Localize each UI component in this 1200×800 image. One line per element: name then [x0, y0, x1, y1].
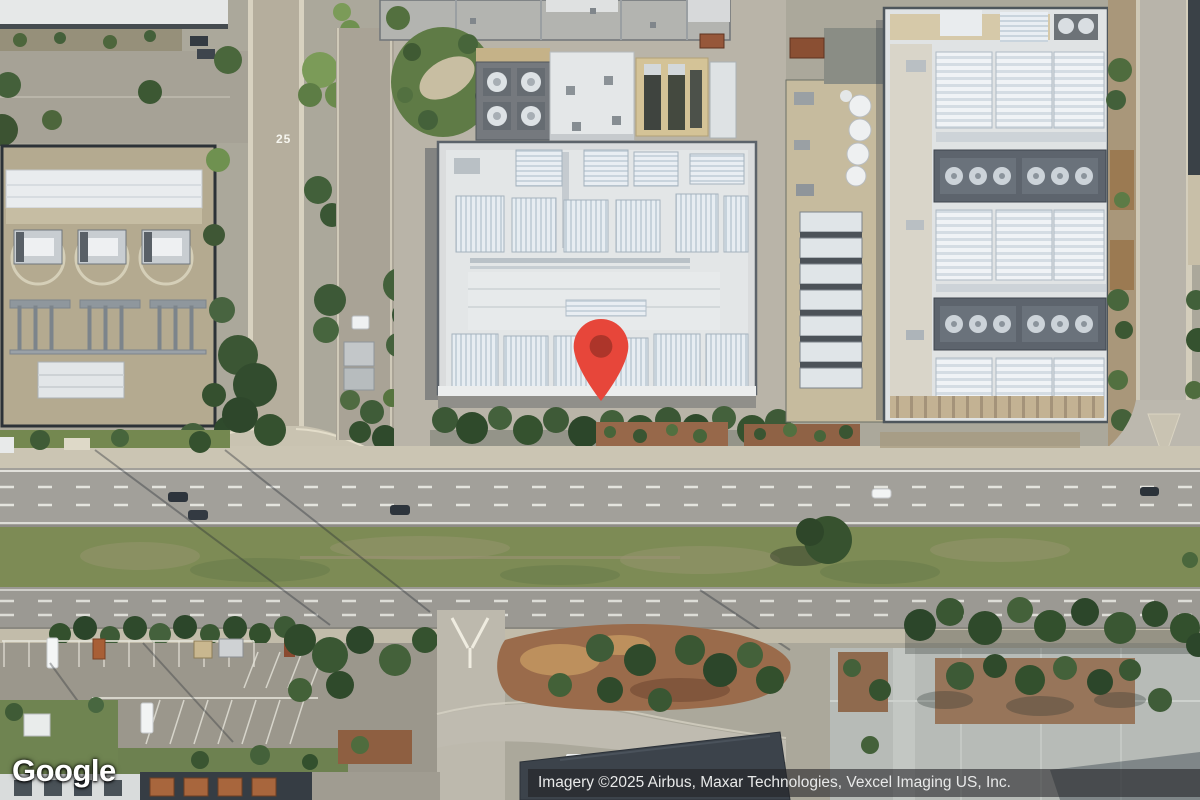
- white-shed: [24, 714, 50, 736]
- car-dark-4: [1140, 487, 1159, 496]
- east-fan-array-1: [934, 150, 1106, 202]
- electrical-substation: [2, 146, 215, 426]
- attribution-text: Imagery ©2025 Airbus, Maxar Technologies…: [538, 774, 1011, 791]
- rooftop-hvac-row-mid: [456, 194, 748, 252]
- car-dark-2: [188, 510, 208, 520]
- substation-shed: [38, 362, 124, 398]
- white-annex-building: [550, 52, 634, 140]
- yard-hvac-column: [800, 212, 862, 388]
- orange-container: [93, 639, 105, 659]
- cooling-fan-unit: [476, 48, 550, 140]
- main-road-eastbound: [0, 468, 1200, 527]
- east-fan-array-2: [934, 298, 1106, 350]
- east-hvac-row-1: [936, 52, 1104, 128]
- car-dark-1: [168, 492, 188, 502]
- imagery-attribution: Imagery ©2025 Airbus, Maxar Technologies…: [528, 769, 1200, 797]
- car-dark-3: [390, 505, 410, 515]
- parked-van: [141, 703, 153, 733]
- car-white: [872, 489, 891, 498]
- map-canvas[interactable]: 25 Google Imagery ©2025 Airbus, Maxar Te…: [0, 0, 1200, 800]
- equipment-yard: [786, 28, 884, 422]
- landscaped-mound: [497, 624, 790, 712]
- google-logo[interactable]: Google: [12, 753, 116, 789]
- pin-body: [574, 319, 629, 401]
- parked-bus: [47, 638, 58, 668]
- location-marker-icon[interactable]: [573, 319, 629, 401]
- pin-hole: [590, 335, 613, 358]
- white-truck: [352, 316, 369, 329]
- road-number-marking: 25: [276, 132, 291, 146]
- east-datacenter-building: [876, 8, 1108, 422]
- northwest-parking: [0, 36, 248, 146]
- east-landscape-strip: [1106, 0, 1138, 460]
- east-hvac-row-2: [936, 210, 1104, 280]
